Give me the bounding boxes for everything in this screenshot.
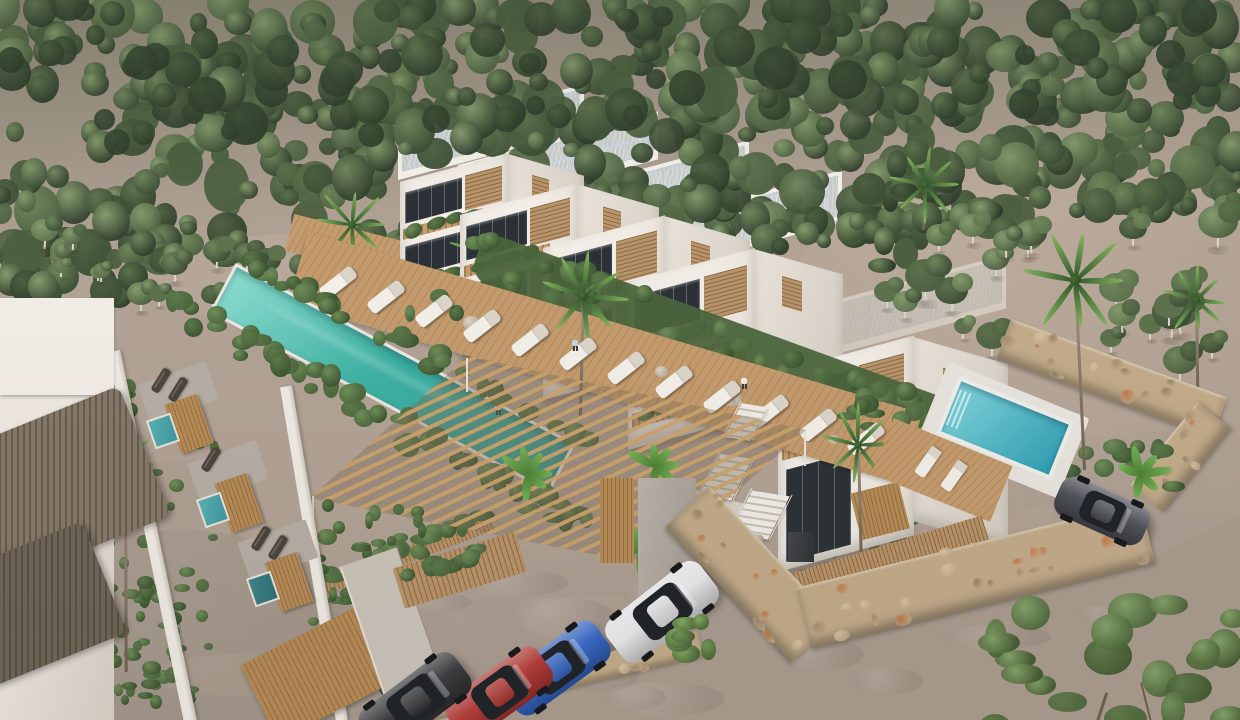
person-figure	[571, 336, 579, 351]
forest-tree	[641, 40, 662, 61]
garden-shrub	[413, 513, 423, 528]
forest-tree	[280, 189, 299, 205]
forest-tree-edge	[771, 238, 789, 256]
hedge-plant	[167, 291, 193, 309]
hedge-plant	[321, 364, 341, 387]
tree-shadow	[966, 243, 984, 249]
stone-mottle	[1118, 388, 1136, 406]
garden-shrub	[365, 512, 373, 529]
tree-shadow	[69, 250, 83, 254]
garden-shrub	[371, 539, 386, 547]
hedge-plant	[270, 352, 291, 376]
shrub	[701, 639, 715, 660]
stone-mottle	[870, 612, 880, 627]
stone-mottle	[971, 576, 984, 590]
stone-mottle	[1028, 565, 1043, 573]
tree-crown	[963, 315, 976, 326]
palm-frond	[1075, 278, 1123, 284]
forest-tree	[680, 178, 696, 191]
forest-tree	[1038, 75, 1064, 96]
forest-tree	[861, 5, 880, 26]
hedge-plant	[184, 318, 203, 337]
gravel-patch	[601, 685, 666, 710]
stone-mottle	[967, 542, 975, 549]
car-roof	[398, 684, 434, 720]
forest-tree	[351, 86, 389, 124]
palapa-roof-deck	[0, 298, 114, 395]
forest-tree	[292, 65, 311, 83]
tree-shadow	[1116, 332, 1134, 338]
compound-shrub	[853, 375, 868, 389]
hedge-plant	[241, 329, 259, 347]
aerial-villa-complex-render	[0, 0, 1240, 720]
garden-shrub	[174, 584, 189, 592]
forest-tree-edge	[817, 234, 830, 247]
stone-mottle	[711, 499, 725, 513]
person-figure	[740, 374, 748, 389]
pergola-post	[466, 358, 468, 392]
stone-mottle	[768, 568, 778, 578]
forest-tree	[614, 8, 634, 28]
tree-crown	[175, 249, 193, 265]
palm-crown-core	[1192, 297, 1199, 303]
forest-tree	[17, 190, 36, 212]
forest-tree	[450, 121, 483, 155]
palm-frond	[923, 185, 927, 224]
stone-mottle	[858, 598, 872, 611]
forest-tree-edge	[1180, 197, 1197, 214]
hedge-plant	[339, 384, 361, 403]
stone-mottle	[899, 597, 912, 609]
tree-crown	[1218, 200, 1240, 223]
forest-tree	[828, 60, 867, 99]
forest-tree	[631, 143, 653, 162]
compound-shrub	[1162, 481, 1186, 492]
stone-mottle	[811, 620, 829, 636]
tree-foliage	[1091, 614, 1133, 649]
forest-tree	[785, 18, 821, 54]
forest-tree	[508, 132, 525, 148]
forest-tree	[21, 158, 47, 187]
forest-tree	[326, 51, 363, 88]
forest-tree	[649, 118, 685, 154]
forest-tree	[754, 47, 797, 90]
garden-shrub	[208, 534, 217, 542]
pergola-post	[804, 432, 806, 466]
pool-steps	[946, 390, 971, 429]
forest-tree	[1099, 0, 1137, 33]
garden-shrub	[142, 661, 161, 675]
tree-crown	[1212, 330, 1228, 344]
stone-mottle	[1089, 361, 1099, 374]
car-roof	[483, 675, 517, 709]
hedge-plant	[331, 311, 350, 324]
forest-tree	[46, 165, 69, 188]
forest-tree	[1114, 153, 1138, 179]
stone-mottle	[1140, 390, 1150, 402]
tree-crown	[952, 273, 973, 292]
garden-shrub	[133, 641, 141, 651]
forest-tree-edge	[130, 230, 156, 256]
person-legs	[742, 384, 744, 389]
hedge-plant	[536, 261, 554, 274]
garden-shrub	[136, 611, 145, 622]
garden-shrub	[329, 587, 337, 602]
tree-shadow	[169, 281, 187, 287]
garden-shrub	[393, 504, 404, 515]
hedge-plant	[714, 320, 728, 338]
tree-shadow	[1023, 253, 1044, 260]
garden-shrub	[196, 579, 209, 592]
forest-tree	[519, 53, 541, 75]
forest-tree	[457, 87, 476, 106]
forest-tree	[400, 5, 424, 30]
tree-crown	[1122, 299, 1140, 315]
stone-mottle	[789, 637, 804, 652]
forest-tree	[581, 26, 604, 47]
forest-tree	[267, 35, 298, 66]
tree-shadow	[990, 276, 1008, 282]
stone-mottle	[999, 333, 1019, 350]
hedge-plant	[636, 285, 653, 303]
compound-shrub	[870, 381, 889, 399]
stone-mottle	[1015, 567, 1024, 578]
garden-shrub	[322, 499, 334, 512]
forest-tree	[969, 63, 990, 84]
tree-shadow	[59, 278, 70, 281]
forest-tree	[528, 132, 544, 149]
forest-tree	[868, 258, 895, 273]
forest-tree	[92, 201, 129, 241]
stone-mottle	[1028, 546, 1041, 560]
stone-mottle	[1045, 357, 1057, 370]
tree-foliage	[1011, 596, 1049, 630]
tree-foliage	[1001, 664, 1044, 683]
garden-shrub	[204, 643, 213, 651]
compound-shrub	[1094, 459, 1114, 476]
tree-shadow	[135, 311, 153, 317]
tree-crown	[973, 211, 991, 227]
forest-tree	[646, 69, 666, 89]
forest-tree	[493, 106, 520, 133]
stone-mottle	[694, 532, 707, 545]
forest-tree	[152, 83, 176, 107]
forest-tree	[738, 127, 756, 142]
palm-crown-core	[921, 182, 929, 188]
stone-mottle	[718, 540, 728, 551]
garden-shrub	[387, 536, 396, 546]
stone-mottle	[839, 601, 854, 611]
forest-tree	[86, 25, 106, 45]
compound-shrub	[896, 382, 917, 401]
stone-mottle	[1046, 564, 1056, 572]
forest-tree	[297, 106, 319, 123]
tree-crown	[939, 221, 956, 236]
forest-tree	[979, 134, 1002, 160]
tree-shadow	[1207, 246, 1234, 254]
forest-tree	[840, 109, 871, 140]
hedge-plant	[373, 331, 385, 346]
stone-mottle	[939, 562, 958, 578]
forest-tree	[1037, 52, 1059, 71]
deck-plant	[449, 305, 464, 321]
wooden-screen	[600, 478, 634, 563]
forest-tree	[104, 129, 130, 155]
hedge-plant	[248, 260, 265, 278]
villa-lattice-screen	[465, 166, 502, 211]
stone-mottle	[1159, 385, 1175, 400]
tree-shadow	[211, 268, 229, 274]
forest-tree	[81, 71, 109, 96]
hedge-plant	[369, 405, 388, 423]
garden-shrub	[122, 682, 137, 690]
forest-tree	[132, 121, 156, 145]
garden-shrub	[169, 479, 184, 492]
forest-tree	[378, 49, 402, 73]
compound-shrub	[1103, 439, 1127, 454]
garden-shrub	[196, 610, 208, 622]
person-legs	[745, 384, 747, 389]
forest-tree-edge	[1069, 203, 1084, 218]
forest-tree	[1036, 140, 1065, 164]
ac-unit	[788, 532, 814, 562]
garden-shrub	[308, 617, 319, 626]
forest-tree	[30, 75, 50, 98]
forest-tree	[1038, 105, 1059, 126]
stone-mottle	[835, 582, 850, 594]
stone-mottle	[1165, 378, 1178, 388]
forest-tree	[893, 87, 919, 116]
planter-plant	[405, 221, 422, 241]
hedge-plant	[482, 232, 500, 249]
forest-tree-edge	[1081, 188, 1116, 223]
hedge-plant	[812, 367, 832, 379]
hedge-plant	[233, 350, 249, 361]
palm-crown-core	[578, 292, 588, 300]
palm-crown-core	[1069, 276, 1080, 285]
forest-tree	[100, 1, 125, 26]
tree-crown	[268, 245, 286, 261]
tree-shadow	[99, 282, 111, 286]
forest-tree	[422, 105, 450, 133]
person-legs	[573, 346, 575, 351]
forest-tree	[1127, 98, 1151, 122]
tree-shadow	[1001, 257, 1018, 262]
tree-shadow	[1162, 325, 1182, 331]
tree-shadow	[915, 300, 942, 308]
forest-tree	[623, 105, 644, 126]
forest-tree	[188, 77, 225, 114]
garden-shrub	[150, 695, 162, 709]
forest-tree-edge	[796, 222, 819, 245]
tree-shadow	[960, 339, 973, 343]
forest-tree	[125, 46, 158, 79]
stone-mottle	[1047, 333, 1059, 347]
tree-foliage	[1191, 639, 1221, 665]
shrub	[693, 614, 709, 630]
forest-tree	[486, 69, 513, 95]
tree-crown	[217, 236, 235, 252]
tree-foliage	[1220, 609, 1240, 627]
car-roof	[1089, 497, 1117, 525]
villa-side-lattice	[783, 276, 803, 313]
planter-plant	[398, 567, 417, 584]
forest-tree	[874, 227, 894, 254]
forest-tree	[470, 23, 505, 58]
deck-plant	[405, 305, 416, 322]
forest-tree	[1193, 54, 1226, 87]
garden-shrub	[137, 576, 154, 588]
forest-tree	[779, 169, 825, 214]
villa-lattice-screen	[530, 198, 570, 247]
forest-tree	[927, 26, 959, 58]
forest-tree	[1181, 0, 1216, 33]
tree-foliage	[1048, 692, 1087, 711]
stone-mottle	[1011, 557, 1025, 566]
stone-mottle	[1177, 425, 1192, 441]
forest-tree	[529, 73, 548, 92]
stone-mottle	[986, 579, 994, 588]
forest-tree	[358, 122, 383, 147]
tree-foliage	[1149, 595, 1188, 614]
stone-mottle	[688, 506, 706, 524]
stone-mottle	[750, 571, 761, 582]
forest-tree	[526, 96, 545, 115]
forest-tree	[652, 6, 673, 27]
tree-crown	[101, 261, 113, 271]
forest-tree	[852, 173, 886, 204]
forest-tree	[6, 122, 24, 142]
forest-tree	[1173, 90, 1193, 110]
person-legs	[576, 346, 578, 351]
hedge-plant	[293, 283, 316, 303]
